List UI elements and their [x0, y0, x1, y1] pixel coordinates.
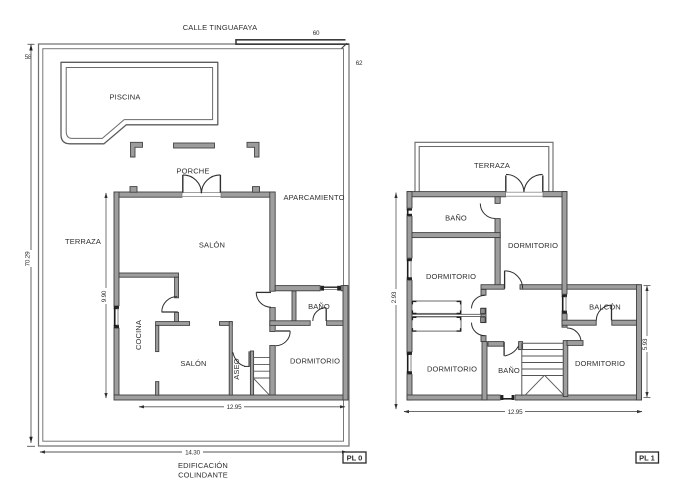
svg-text:PL 1: PL 1: [639, 454, 655, 463]
svg-text:BAÑO: BAÑO: [308, 302, 330, 311]
svg-text:DORMITORIO: DORMITORIO: [508, 241, 558, 250]
svg-text:BAÑO: BAÑO: [498, 366, 520, 375]
svg-text:60: 60: [313, 30, 320, 37]
svg-text:SALÓN: SALÓN: [180, 359, 206, 368]
svg-text:62: 62: [356, 60, 363, 67]
svg-text:9.90: 9.90: [101, 290, 108, 302]
svg-text:70.29: 70.29: [25, 251, 32, 266]
svg-text:DORMITORIO: DORMITORIO: [290, 357, 340, 366]
svg-text:DORMITORIO: DORMITORIO: [427, 365, 477, 374]
svg-text:12.95: 12.95: [227, 404, 242, 411]
svg-text:PISCINA: PISCINA: [109, 93, 140, 102]
svg-text:COLINDANTE: COLINDANTE: [178, 471, 228, 480]
svg-text:EDIFICACIÓN: EDIFICACIÓN: [178, 461, 228, 470]
svg-text:DORMITORIO: DORMITORIO: [426, 272, 476, 281]
svg-text:TERRAZA: TERRAZA: [65, 237, 101, 246]
svg-text:TERRAZA: TERRAZA: [474, 161, 510, 170]
svg-text:BAÑO: BAÑO: [445, 214, 467, 223]
svg-text:BALCÓN: BALCÓN: [589, 303, 621, 312]
svg-text:PORCHE: PORCHE: [177, 167, 210, 176]
svg-text:PL 0: PL 0: [347, 454, 363, 463]
svg-text:SALÓN: SALÓN: [199, 241, 225, 250]
svg-text:ASEO: ASEO: [232, 358, 241, 379]
svg-text:14.30: 14.30: [185, 449, 200, 456]
svg-text:CALLE TINGUAFAYA: CALLE TINGUAFAYA: [183, 23, 258, 32]
svg-text:5.93: 5.93: [642, 338, 649, 350]
svg-text:DORMITORIO: DORMITORIO: [575, 359, 625, 368]
svg-text:APARCAMIENTO: APARCAMIENTO: [283, 193, 344, 202]
svg-text:12.95: 12.95: [508, 409, 523, 416]
svg-text:2.93: 2.93: [391, 291, 398, 303]
svg-text:COCINA: COCINA: [134, 320, 143, 350]
